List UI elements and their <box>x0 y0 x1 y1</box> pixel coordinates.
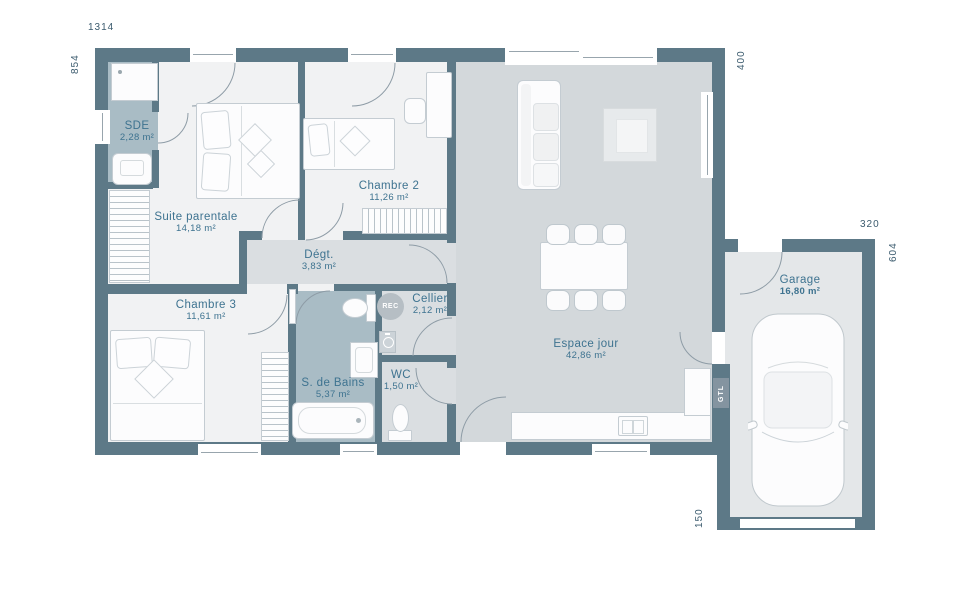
room-area: 16,80 m² <box>780 287 821 298</box>
door-gap-garage-service <box>738 239 782 252</box>
dim-width-top: 1314 <box>88 22 114 33</box>
floor-plan: REC GTL SDE 2,28 m² <box>0 0 960 598</box>
room-area: 14,18 m² <box>154 224 237 235</box>
room-area: 2,28 m² <box>120 133 154 144</box>
shower-sde <box>111 63 158 101</box>
room-label-espace-jour: Espace jour 42,86 m² <box>553 338 618 362</box>
dining-chair <box>574 290 598 311</box>
dim-garage-depth: 604 <box>888 242 899 262</box>
room-label-chambre2: Chambre 2 11,26 m² <box>359 180 420 204</box>
room-label-chambre3: Chambre 3 11,61 m² <box>176 299 237 323</box>
room-area: 11,61 m² <box>176 312 237 323</box>
wardrobe-chambre3 <box>261 352 289 441</box>
pillow <box>200 110 231 150</box>
room-label-sde: SDE 2,28 m² <box>120 120 154 144</box>
gtl-box: GTL <box>713 378 729 408</box>
kitchen-counter <box>511 412 711 440</box>
tv-unit <box>603 108 657 162</box>
window-sde <box>93 110 110 144</box>
room-label-sdb: S. de Bains 5,37 m² <box>301 377 364 401</box>
wall-cellier-wc <box>382 355 456 362</box>
door-gap-garage <box>712 332 725 364</box>
dining-chair <box>546 224 570 245</box>
washing-machine <box>379 331 396 353</box>
pillow <box>307 123 330 157</box>
dining-table <box>540 242 628 290</box>
room-label-degt: Dégt. 3,83 m² <box>302 249 336 273</box>
window-bay-espace <box>505 43 657 65</box>
wall-suite-door-jamb <box>247 231 262 240</box>
window-chambre3 <box>198 444 261 460</box>
wall-sde-right-lower <box>152 150 159 188</box>
wardrobe-suite <box>109 190 150 283</box>
pillow <box>201 152 232 192</box>
washbasin-sde <box>112 153 152 185</box>
room-label-garage: Garage 16,80 m² <box>780 274 821 298</box>
toilet-bowl-sdb <box>342 298 368 318</box>
dining-chair <box>546 290 570 311</box>
room-label-wc: WC 1,50 m² <box>384 369 418 393</box>
wall-jog-150 <box>717 442 730 518</box>
room-area: 1,50 m² <box>384 382 418 393</box>
wardrobe-chambre2 <box>362 208 447 234</box>
window-espace-south <box>592 444 650 458</box>
kitchen-sink <box>618 416 648 436</box>
toilet-bowl-wc <box>392 404 409 432</box>
wall-sdb-cellier-top <box>334 284 456 291</box>
kitchen-counter-return <box>684 368 711 416</box>
window-espace-east <box>701 92 713 178</box>
wall-espace-west-mid2 <box>447 356 456 368</box>
window-suite <box>190 46 236 62</box>
wall-right-upper <box>712 48 725 332</box>
wall-espace-west-mid1 <box>447 283 456 316</box>
room-area: 42,86 m² <box>553 351 618 362</box>
room-area: 2,12 m² <box>412 306 447 317</box>
dining-chair <box>574 224 598 245</box>
wall-chambre2-jamb-left <box>298 231 305 240</box>
floor-degagement <box>246 240 456 284</box>
dim-garage-width: 320 <box>860 219 880 230</box>
dining-chair <box>602 290 626 311</box>
dim-garage-offset: 150 <box>694 508 705 528</box>
room-area: 3,83 m² <box>302 262 336 273</box>
wall-espace-west-lower <box>447 404 456 442</box>
window-sdb <box>340 444 377 458</box>
sofa <box>517 80 561 190</box>
wall-chambre3-top-west <box>95 284 247 294</box>
room-area: 5,37 m² <box>301 390 364 401</box>
water-heater-rec: REC <box>377 293 404 320</box>
door-leaf-sdb <box>289 289 296 324</box>
gtl-label: GTL <box>718 385 725 402</box>
dining-chair <box>602 224 626 245</box>
dim-right-side: 400 <box>736 50 747 70</box>
dim-left-side: 854 <box>70 54 81 74</box>
room-area: 11,26 m² <box>359 193 420 204</box>
shower-sdb <box>350 342 378 378</box>
garage-vehicle-door <box>740 519 855 528</box>
car <box>748 310 848 510</box>
bathtub <box>292 402 374 439</box>
rec-label: REC <box>382 303 398 310</box>
desk-chambre2 <box>426 72 452 138</box>
room-label-cellier: Cellier 2,12 m² <box>412 293 447 317</box>
door-gap-entry <box>460 442 506 455</box>
wall-garage-right <box>862 239 875 530</box>
window-chambre2 <box>348 46 396 62</box>
chair-desk <box>404 98 426 124</box>
room-label-suite: Suite parentale 14,18 m² <box>154 211 237 235</box>
